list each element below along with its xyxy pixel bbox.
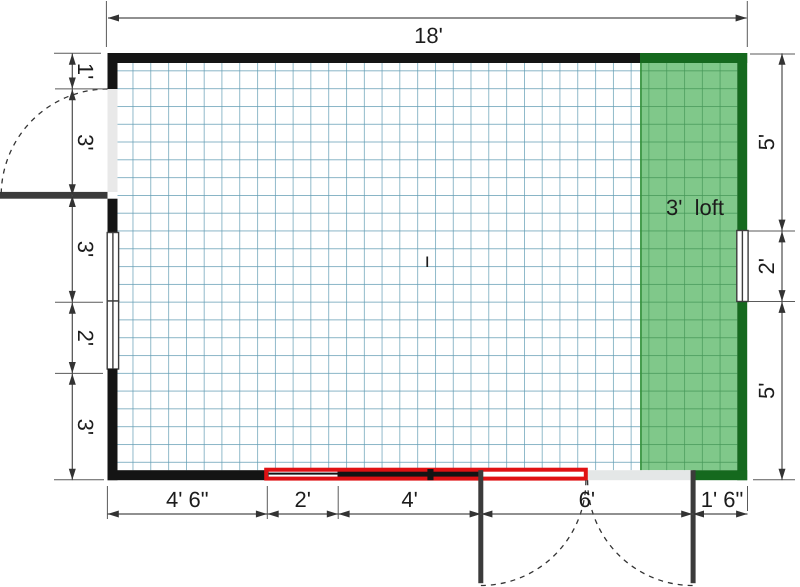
svg-text:3' loft: 3' loft [666,195,724,220]
svg-text:2': 2' [754,258,779,274]
svg-text:5': 5' [754,134,779,150]
svg-text:5': 5' [754,383,779,399]
svg-text:4': 4' [401,487,417,512]
svg-text:2': 2' [294,487,310,512]
svg-text:4' 6": 4' 6" [166,487,209,512]
svg-text:2': 2' [73,330,98,346]
svg-text:18': 18' [414,23,443,48]
svg-text:1': 1' [73,63,98,79]
svg-text:3': 3' [73,134,98,150]
svg-text:3': 3' [73,419,98,435]
svg-text:1' 6": 1' 6" [701,487,744,512]
svg-text:3': 3' [73,241,98,257]
svg-text:6': 6' [579,487,595,512]
